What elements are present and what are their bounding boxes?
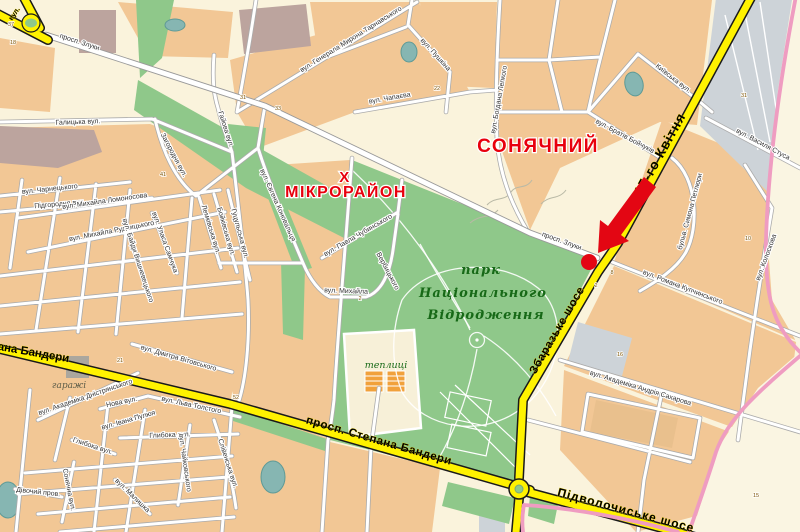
green-strip [281,262,305,340]
house-number: 37 [8,22,14,28]
park-plaza-center [475,338,478,341]
park-name-label: парк [461,263,501,278]
area-label: гаражі [52,381,86,391]
pond [165,19,185,31]
district-label: СОНЯЧНИЙ [477,135,599,157]
house-number: 21 [117,358,123,364]
pond [401,42,417,62]
street-label: вул. Михайла [324,286,368,296]
greenhouse-area [344,330,421,437]
district-label: МІКРОРАЙОН [285,182,407,201]
pond [261,461,285,493]
house-number: 18 [10,40,16,46]
house-number: 16 [617,352,623,358]
roundabout-island [515,485,523,493]
map-viewport[interactable]: просп. Злукипросп. Злукивул. Генерала Ми… [0,0,800,532]
roundabout-island [25,19,37,28]
building-block [0,38,55,112]
house-number: 31 [240,95,246,101]
city-map[interactable]: просп. Злукипросп. Злукивул. Генерала Ми… [0,0,800,532]
location-dot-icon[interactable] [581,254,597,270]
park-name-label: Національного [418,286,547,301]
house-number: 15 [753,493,759,499]
house-number: 8 [610,270,613,276]
house-number: 33 [275,106,281,112]
house-number: 10 [745,236,751,242]
area-label: теплиці [365,360,408,371]
house-number: 22 [434,86,440,92]
house-number: 52 [233,395,239,401]
house-number: 41 [160,172,166,178]
house-number: 2 [358,296,361,302]
house-number: 31 [741,93,747,99]
park-name-label: Відродження [426,308,544,323]
house-number: 2 [594,283,597,289]
